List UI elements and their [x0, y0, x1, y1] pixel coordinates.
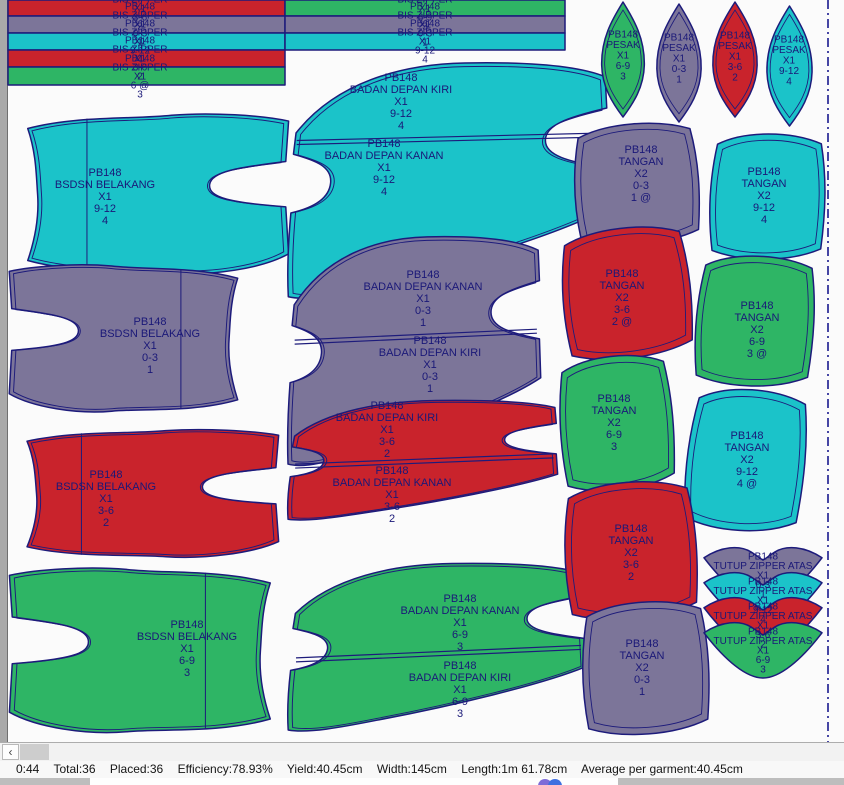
piece-label-line: 9-12 — [779, 66, 799, 77]
piece-label-line: X1 — [453, 684, 466, 696]
piece-label-line: BSDSN BELAKANG — [56, 481, 156, 493]
piece-label-line: 3 @ — [747, 348, 767, 360]
status-average: Average per garment:40.45cm — [581, 762, 743, 776]
piece-label-line: PESAK — [662, 43, 696, 54]
piece-label-line: X1 — [99, 493, 112, 505]
piece-label-line: X2 — [634, 168, 647, 180]
piece-label-line: PB148 — [605, 268, 638, 280]
piece-label-line: PESAK — [718, 41, 752, 52]
piece-label-line: 1 — [147, 364, 153, 376]
piece-label-line: PB148 — [413, 335, 446, 347]
piece-label-line: 0-3 — [142, 352, 158, 364]
piece-label-line: PB148 — [88, 167, 121, 179]
piece-label-line: 6-9 — [616, 61, 631, 72]
piece-label-line: X1 — [617, 51, 630, 62]
piece-label-line: X1 — [180, 643, 193, 655]
piece-label-line: PB148 — [384, 72, 417, 84]
piece-label-line: PB148 — [170, 619, 203, 631]
piece-label-line: TANGAN — [741, 178, 786, 190]
piece-label-line: BADAN DEPAN KANAN — [401, 605, 520, 617]
piece-label-line: 6-9 — [606, 429, 622, 441]
piece-label-line: 3 — [611, 441, 617, 453]
piece-label-line: PB148 — [730, 430, 763, 442]
piece-label-line: X1 — [416, 293, 429, 305]
piece-label-line: BSDSN BELAKANG — [137, 631, 237, 643]
piece-label-line: BADAN DEPAN KIRI — [336, 412, 439, 424]
piece-label-line: 3-6 — [614, 304, 630, 316]
piece-label-line: X2 — [624, 547, 637, 559]
piece-label-line: PB148 — [375, 465, 408, 477]
piece-label-line: X2 — [740, 454, 753, 466]
piece-label-line: PESAK — [772, 45, 806, 56]
marker-canvas[interactable]: PB148BIS ZIPPERX13-62PB148BIS ZIPPERX10-… — [0, 0, 844, 742]
piece-label-line: 6-9 — [179, 655, 195, 667]
piece-label-line: 0-3 — [634, 674, 650, 686]
piece-label-line: 1 @ — [631, 192, 651, 204]
status-elapsed-time: 0:44 — [16, 762, 39, 776]
piece-label-line: X1 — [394, 96, 407, 108]
piece-label-line: BSDSN BELAKANG — [100, 328, 200, 340]
piece-label-line: PESAK — [606, 40, 640, 51]
piece-label-line: TANGAN — [608, 535, 653, 547]
scroll-left-button[interactable]: ‹ — [2, 744, 19, 760]
piece-label-line: X1 — [98, 191, 111, 203]
piece-label-line: 3 — [184, 667, 190, 679]
piece-label-line: 1 — [676, 75, 682, 86]
piece-label-line: X1 — [673, 54, 686, 65]
piece-label-line: 9-12 — [94, 203, 116, 215]
piece-label-line: 3-6 — [384, 501, 400, 513]
taskbar-peek-icon-blue — [548, 779, 562, 785]
piece-label-line: BADAN DEPAN KANAN — [325, 150, 444, 162]
piece-label-line: PB148 — [614, 523, 647, 535]
scrollbar-thumb[interactable] — [20, 744, 49, 760]
piece-label-line: 3-6 — [728, 62, 743, 73]
piece-label-line: PB148 — [774, 35, 804, 46]
piece-label-line: PB148 — [370, 400, 403, 412]
piece-label-line: X1 — [453, 617, 466, 629]
piece-label-line: TANGAN — [599, 280, 644, 292]
horizontal-scrollbar[interactable]: ‹ — [0, 742, 844, 761]
piece-label-line: PB148 — [443, 660, 476, 672]
piece-label-line: 3 — [760, 665, 766, 676]
piece-label-line: PB148 — [443, 593, 476, 605]
status-total: Total:36 — [53, 762, 95, 776]
piece-label-line: 4 — [102, 215, 108, 227]
piece-label-line: BADAN DEPAN KIRI — [409, 672, 512, 684]
piece-label-line: TANGAN — [724, 442, 769, 454]
piece-label-line: 3 — [137, 90, 143, 101]
piece-label-line: PB148 — [740, 300, 773, 312]
status-yield: Yield:40.45cm — [287, 762, 363, 776]
status-placed: Placed:36 — [110, 762, 163, 776]
piece-label-line: 9-12 — [736, 466, 758, 478]
piece-label-line: X1 — [380, 424, 393, 436]
piece-label-line: 0-3 — [422, 371, 438, 383]
piece-label-line: 9-12 — [390, 108, 412, 120]
piece-label-line: 2 — [732, 73, 738, 84]
piece-label-line: X1 — [377, 162, 390, 174]
piece-label-line: TANGAN — [618, 156, 663, 168]
piece-label-line: 6-9 — [749, 336, 765, 348]
piece-label-line: 3-6 — [623, 559, 639, 571]
piece-label-line: 4 — [786, 77, 792, 88]
piece-label-line: 4 @ — [737, 478, 757, 490]
piece-label-line: BADAN DEPAN KANAN — [364, 281, 483, 293]
piece-label-line: PB148 — [625, 638, 658, 650]
piece-label-line: 2 — [103, 517, 109, 529]
piece-label-line: BADAN DEPAN KANAN — [333, 477, 452, 489]
bottom-edge — [0, 778, 844, 785]
piece-label-line: 2 — [628, 571, 634, 583]
piece-label-line: X1 — [143, 340, 156, 352]
status-bar: 0:44 Total:36 Placed:36 Efficiency:78.93… — [0, 761, 844, 778]
piece-label-line: 3 — [457, 641, 463, 653]
status-width: Width:145cm — [377, 762, 447, 776]
piece-label-line: X1 — [423, 359, 436, 371]
piece-label-line: X1 — [783, 56, 796, 67]
piece-label-line: 4 — [761, 214, 767, 226]
piece-label-line: 9-12 — [373, 174, 395, 186]
piece-label-line: BADAN DEPAN KIRI — [350, 84, 453, 96]
piece-label-line: TANGAN — [734, 312, 779, 324]
piece-label-line: TANGAN — [619, 650, 664, 662]
piece-label-line: BADAN DEPAN KIRI — [379, 347, 482, 359]
piece-label-line: PB148 — [720, 31, 750, 42]
piece-label-line: PB148 — [133, 316, 166, 328]
piece-label-line: 0-3 — [672, 64, 687, 75]
piece-label-line: X2 — [750, 324, 763, 336]
piece-label-line: 2 @ — [612, 316, 632, 328]
piece-label-line: PB148 — [624, 144, 657, 156]
taskbar-peek — [90, 778, 618, 785]
piece-label-line: PB148 — [664, 33, 694, 44]
piece-label-line: X1 — [729, 52, 742, 63]
piece-label-line: 3-6 — [379, 436, 395, 448]
piece-label-line: PB148 — [367, 138, 400, 150]
piece-label-line: PB148 — [406, 269, 439, 281]
piece-label-line: PB148 — [597, 393, 630, 405]
scroll-left-icon: ‹ — [9, 746, 13, 758]
piece-label-line: 1 — [639, 686, 645, 698]
piece-label-line: 3 — [457, 708, 463, 720]
piece-label-line: 0-3 — [633, 180, 649, 192]
piece-label-line: 2 — [384, 448, 390, 460]
piece-label-line: 4 — [381, 186, 387, 198]
piece-label-line: 4 — [398, 120, 404, 132]
piece-label-line: 3 — [620, 72, 626, 83]
piece-label-line: X2 — [615, 292, 628, 304]
piece-label-line: PB148 — [608, 30, 638, 41]
piece-label-line: TANGAN — [591, 405, 636, 417]
piece-label-line: 3-6 — [98, 505, 114, 517]
status-length: Length:1m 61.78cm — [461, 762, 567, 776]
status-efficiency: Efficiency:78.93% — [178, 762, 273, 776]
piece-label-line: 6-9 — [452, 696, 468, 708]
piece-label-line: PB148 — [747, 166, 780, 178]
piece-label-line: 0-3 — [415, 305, 431, 317]
marker-making-window: PB148BIS ZIPPERX13-62PB148BIS ZIPPERX10-… — [0, 0, 844, 785]
piece-label-line: 2 — [389, 513, 395, 525]
piece-label-line: 1 — [420, 317, 426, 329]
piece-label-line: X2 — [757, 190, 770, 202]
piece-label-line: 9-12 — [753, 202, 775, 214]
marker-layout-svg[interactable]: PB148BIS ZIPPERX13-62PB148BIS ZIPPERX10-… — [0, 0, 844, 742]
piece-label-line: 6-9 — [452, 629, 468, 641]
piece-label-line: X2 — [635, 662, 648, 674]
piece-label-line: X1 — [385, 489, 398, 501]
piece-label-line: 1 — [427, 383, 433, 395]
piece-label-line: PB148 — [89, 469, 122, 481]
piece-label-line: 4 — [422, 55, 428, 66]
piece-label-line: BSDSN BELAKANG — [55, 179, 155, 191]
piece-label-line: X2 — [607, 417, 620, 429]
